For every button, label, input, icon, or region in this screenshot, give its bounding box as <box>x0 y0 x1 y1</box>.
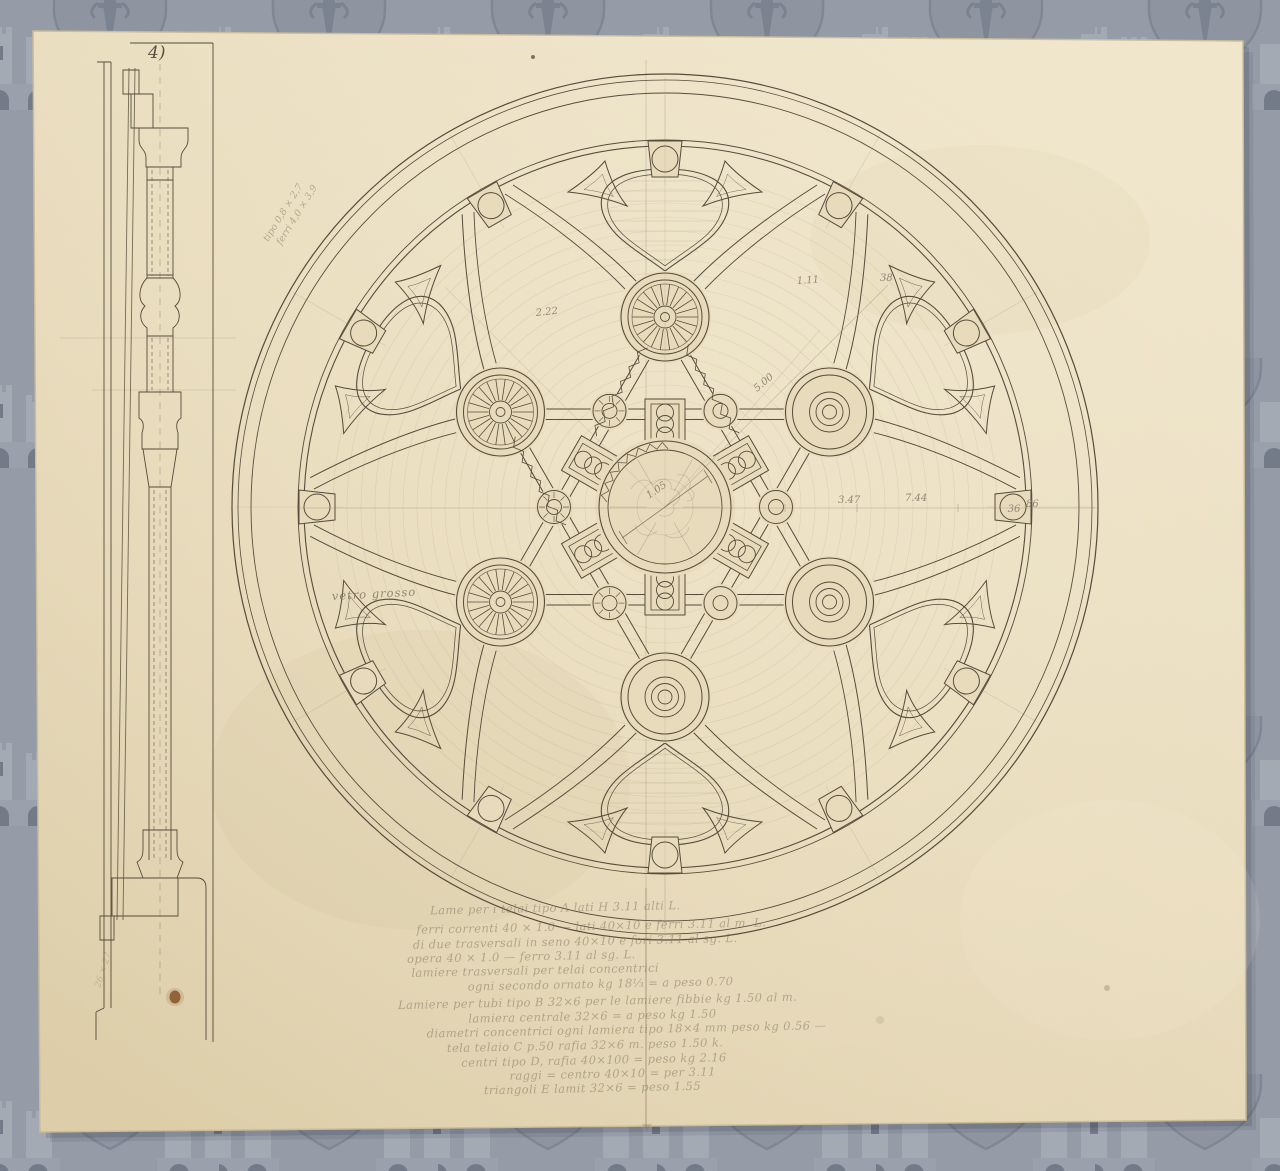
rosette <box>455 366 547 458</box>
ink-stain <box>170 991 181 1004</box>
rosette <box>784 556 876 648</box>
paper-mottle <box>810 145 1150 335</box>
dim-label: 36 <box>1008 504 1021 515</box>
archival-scan-rose-window-drawing: 2.22 1.11 38 5.00 3.47 7.44 36 86 1.05 v… <box>0 0 1280 1171</box>
small-rosette <box>591 584 629 622</box>
dim-label: 38 <box>880 273 893 284</box>
small-rosette <box>702 584 740 622</box>
dim-label: 3.47 <box>838 495 861 506</box>
small-rosette <box>591 392 629 430</box>
rosette <box>455 556 547 648</box>
small-rosette <box>757 488 795 526</box>
paper-mottle <box>960 800 1260 1040</box>
small-rosette <box>702 392 740 430</box>
sheet-number: 4) <box>147 43 165 63</box>
small-rosette <box>535 488 573 526</box>
dim-label: 86 <box>1026 499 1039 510</box>
dim-label: 7.44 <box>905 493 927 504</box>
rosette <box>784 366 876 458</box>
dim-label: 1.11 <box>796 274 819 287</box>
